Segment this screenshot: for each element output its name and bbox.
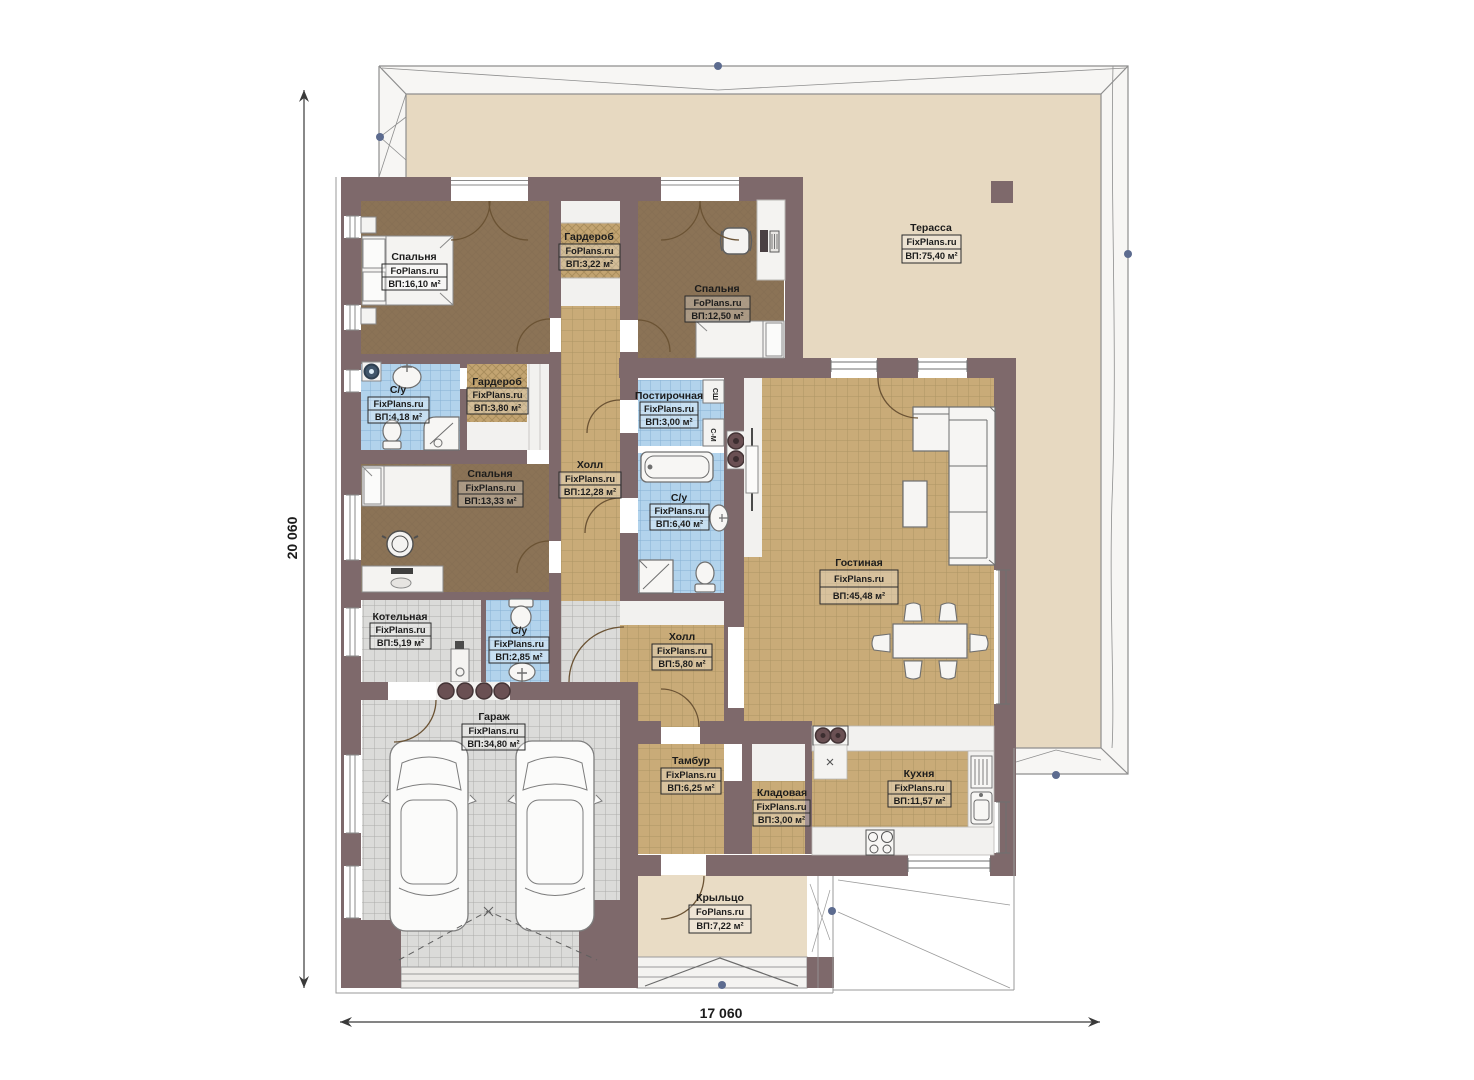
svg-text:ВП:12,28 м²: ВП:12,28 м² xyxy=(564,487,616,497)
svg-text:FixPlans.ru: FixPlans.ru xyxy=(468,726,518,736)
svg-text:Гостиная: Гостиная xyxy=(835,557,882,569)
svg-text:FoPlans.ru: FoPlans.ru xyxy=(693,298,741,308)
svg-text:FixPlans.ru: FixPlans.ru xyxy=(494,639,544,649)
svg-text:ВП:34,80 м²: ВП:34,80 м² xyxy=(467,739,519,749)
svg-text:С/у: С/у xyxy=(671,492,688,504)
svg-text:FixPlans.ru: FixPlans.ru xyxy=(644,404,694,414)
svg-text:ВП:6,25 м²: ВП:6,25 м² xyxy=(667,783,714,793)
svg-text:Тамбур: Тамбур xyxy=(672,755,710,767)
svg-text:ВП:3,80 м²: ВП:3,80 м² xyxy=(474,403,521,413)
svg-text:Холл: Холл xyxy=(577,459,603,471)
svg-text:СШ: СШ xyxy=(711,388,718,400)
svg-text:FixPlans.ru: FixPlans.ru xyxy=(465,483,515,493)
svg-text:ВП:5,80 м²: ВП:5,80 м² xyxy=(658,659,705,669)
svg-text:ВП:5,19 м²: ВП:5,19 м² xyxy=(377,638,424,648)
svg-text:ВП:3,00 м²: ВП:3,00 м² xyxy=(758,815,805,825)
svg-text:Спальня: Спальня xyxy=(391,251,436,263)
svg-text:ВП:16,10 м²: ВП:16,10 м² xyxy=(388,279,440,289)
svg-text:ВП:2,85 м²: ВП:2,85 м² xyxy=(495,652,542,662)
svg-text:С/у: С/у xyxy=(390,384,407,396)
svg-text:Крыльцо: Крыльцо xyxy=(696,892,744,904)
svg-text:С-М: С-М xyxy=(709,428,716,441)
svg-text:Терасса: Терасса xyxy=(910,222,952,234)
svg-text:FixPlans.ru: FixPlans.ru xyxy=(894,783,944,793)
svg-text:Гардероб: Гардероб xyxy=(564,231,614,243)
svg-text:Котельная: Котельная xyxy=(373,611,428,623)
svg-text:FoPlans.ru: FoPlans.ru xyxy=(565,246,613,256)
svg-text:FixPlans.ru: FixPlans.ru xyxy=(654,506,704,516)
svg-text:FixPlans.ru: FixPlans.ru xyxy=(472,390,522,400)
svg-text:FixPlans.ru: FixPlans.ru xyxy=(375,625,425,635)
svg-text:ВП:7,22 м²: ВП:7,22 м² xyxy=(696,921,743,931)
svg-text:Гараж: Гараж xyxy=(478,711,510,723)
svg-text:ВП:75,40 м²: ВП:75,40 м² xyxy=(905,251,957,261)
svg-text:Кухня: Кухня xyxy=(904,768,935,780)
svg-text:FixPlans.ru: FixPlans.ru xyxy=(373,399,423,409)
svg-text:ВП:4,18 м²: ВП:4,18 м² xyxy=(375,412,422,422)
svg-text:FixPlans.ru: FixPlans.ru xyxy=(756,802,806,812)
svg-text:Гардероб: Гардероб xyxy=(472,376,522,388)
svg-text:ВП:11,57 м²: ВП:11,57 м² xyxy=(894,796,946,806)
svg-text:ВП:3,00 м²: ВП:3,00 м² xyxy=(645,417,692,427)
svg-text:20 060: 20 060 xyxy=(284,516,300,559)
svg-text:FixPlans.ru: FixPlans.ru xyxy=(565,474,615,484)
svg-text:Спальня: Спальня xyxy=(694,283,739,295)
svg-text:FixPlans.ru: FixPlans.ru xyxy=(834,574,884,584)
svg-text:FixPlans.ru: FixPlans.ru xyxy=(666,770,716,780)
svg-text:Кладовая: Кладовая xyxy=(757,787,807,799)
svg-text:FoPlans.ru: FoPlans.ru xyxy=(696,907,744,917)
svg-text:ВП:6,40 м²: ВП:6,40 м² xyxy=(656,519,703,529)
svg-text:ВП:45,48 м²: ВП:45,48 м² xyxy=(833,591,885,601)
svg-text:Спальня: Спальня xyxy=(467,468,512,480)
svg-text:С/у: С/у xyxy=(511,625,528,637)
svg-text:FixPlans.ru: FixPlans.ru xyxy=(906,237,956,247)
svg-text:ВП:3,22 м²: ВП:3,22 м² xyxy=(566,259,613,269)
svg-text:FoPlans.ru: FoPlans.ru xyxy=(390,266,438,276)
svg-text:ВП:13,33 м²: ВП:13,33 м² xyxy=(464,496,516,506)
svg-text:FixPlans.ru: FixPlans.ru xyxy=(657,646,707,656)
svg-text:ВП:12,50 м²: ВП:12,50 м² xyxy=(691,311,743,321)
svg-text:Холл: Холл xyxy=(669,631,695,643)
svg-text:17 060: 17 060 xyxy=(700,1005,743,1021)
svg-text:Постирочная: Постирочная xyxy=(635,390,703,402)
